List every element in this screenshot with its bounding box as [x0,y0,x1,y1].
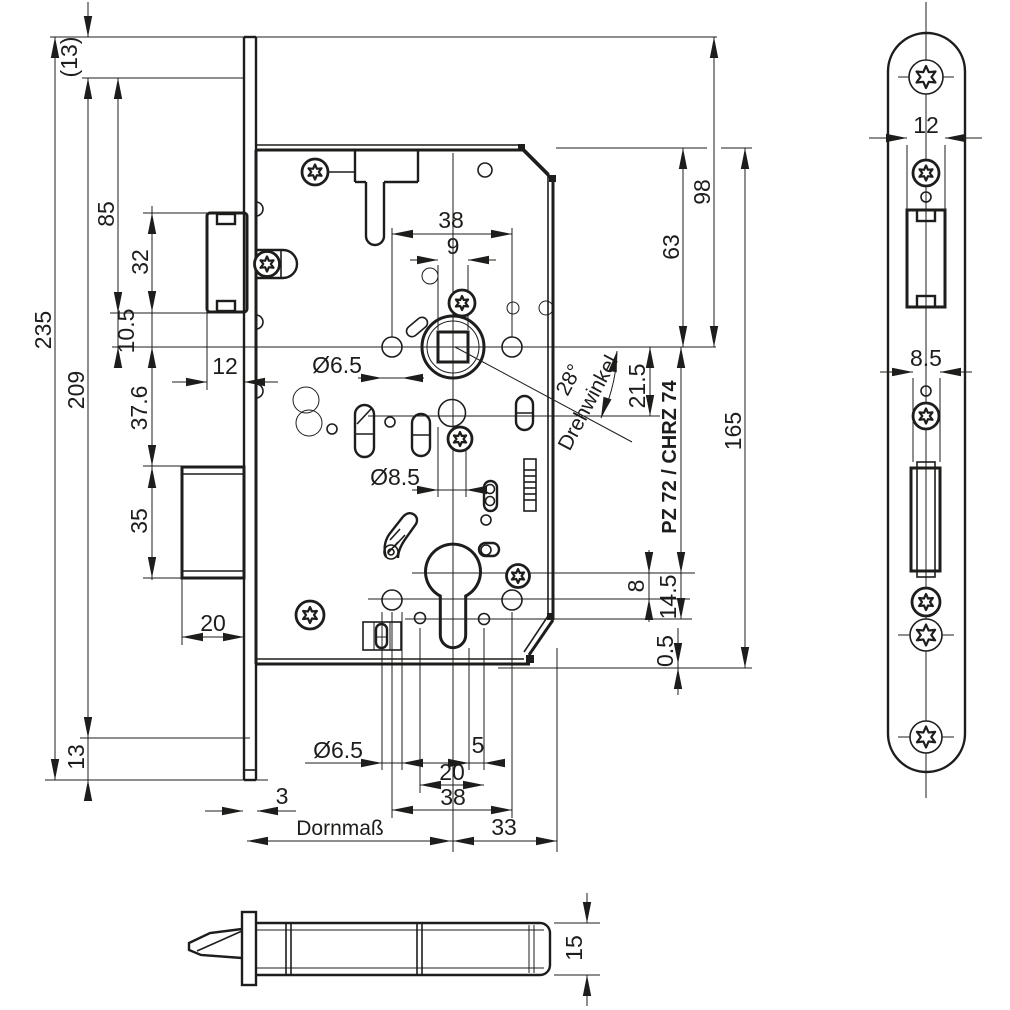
arrowhead [645,599,653,620]
dia-label-6-5-top: Ø6.5 [312,352,362,378]
arrowhead [536,837,557,845]
fixing-hole [382,590,402,610]
arrowhead [645,552,653,573]
torx-screw-icon [913,160,939,186]
latch-bolt [207,213,247,312]
dim-label-235: 235 [30,311,56,349]
bottom-view [189,912,550,985]
arrowhead [741,647,749,668]
arrowhead [223,633,244,641]
arrowhead [430,837,451,845]
torx-screw-icon [449,290,475,316]
arrowhead [583,902,591,923]
chamfer-mark [518,144,525,151]
arrowhead [148,557,156,578]
change-lever [384,513,417,559]
arrowhead [674,668,682,689]
faceplate-edge [244,37,256,780]
arrowhead [417,256,438,264]
arrowhead [51,759,59,780]
spring [524,459,536,511]
arrowhead [402,374,423,382]
arrowhead [392,806,413,814]
dim-label-32: 32 [127,249,153,275]
dim-label-13-paren: (13) [56,37,82,78]
torx-screw-icon [910,721,942,753]
chamfer-mark [549,175,556,182]
torx-screw-icon [302,159,328,185]
dim-label-10-5: 10.5 [113,309,139,354]
arrowhead [148,347,156,368]
arrowhead [392,230,413,238]
dim-label-165: 165 [720,412,746,450]
torx-screw-icon [507,565,530,588]
torx-screw-icon [912,588,940,616]
arrowhead [420,781,441,789]
main-view [182,37,556,780]
latch-tip [189,929,242,958]
dim-label-8: 8 [623,580,649,593]
arrowhead [491,230,512,238]
arrowhead [84,780,92,801]
arrowhead [710,37,718,58]
torx-screw-icon [255,252,280,277]
dia-label-6-5-bottom: Ø6.5 [313,737,363,763]
faceplate-bar [242,912,256,985]
dia-label-8-5: Ø8.5 [370,464,420,490]
arrowhead [468,256,489,264]
arrowhead [114,78,122,99]
arrowhead [679,148,687,169]
torx-screw-icon [448,427,472,451]
arrowhead [710,326,718,347]
faceplate-dim-8-5: 8.5 [910,345,942,371]
arrowhead [491,806,512,814]
oblong-slot [355,405,374,457]
technical-drawing-canvas: (13) 235 209 85 32 10.5 37.6 35 13 12 20… [0,0,1010,1010]
arrowhead [148,445,156,466]
internal-mechanism [293,387,536,650]
arrowhead [484,759,505,767]
dimension-lines [45,2,982,1006]
dim-label-63: 63 [658,234,684,260]
cylinder-hole [382,544,522,648]
dim-label-15: 15 [561,935,587,961]
dim-label-38-bottom: 38 [440,784,466,810]
arrowhead [222,807,243,815]
case-hole [478,163,492,177]
dim-label-13-bottom: 13 [63,744,89,770]
spring-catch-slot [404,315,429,339]
dim-label-98: 98 [689,179,715,205]
faceplate-dim-12: 12 [913,112,939,138]
arrowhead [186,378,207,386]
arrowhead [583,975,591,996]
dim-label-5: 5 [472,732,485,758]
dim-label-14-5: 14.5 [655,575,681,620]
arrowhead [84,16,92,37]
dim-label-20-bolt: 20 [200,610,226,636]
arrowhead [402,759,423,767]
dim-label-85: 85 [93,201,119,227]
dim-label-35: 35 [126,508,152,534]
dim-label-37-6: 37.6 [126,386,152,431]
arrowhead [148,467,156,488]
dimension-arrowheads [51,16,966,996]
arrowhead [677,347,685,368]
variant-label: PZ 72 / CHRZ 74 [659,379,681,533]
dim-label-38-top: 38 [438,207,464,233]
chamfer-mark [547,613,554,620]
arrowhead [466,486,487,494]
dim-label-9: 9 [447,233,460,259]
arrowhead [148,291,156,312]
dim-label-20-bottom: 20 [439,759,465,785]
arrowhead [84,717,92,738]
arrowhead [453,837,474,845]
dim-label-21-5: 21.5 [624,364,650,409]
fixing-hole [502,590,522,610]
torx-screw-icon [910,619,942,651]
small-hole [415,613,426,624]
arrowhead [886,134,907,142]
dim-label-3: 3 [276,783,289,809]
arrowhead [945,134,966,142]
dim-label-209: 209 [63,371,89,409]
torx-screw-icon [913,403,939,429]
arrowhead [247,837,268,845]
arrowhead [417,486,438,494]
arrowhead [463,781,484,789]
arrowhead [84,78,92,99]
arrowhead [361,759,382,767]
deadbolt [182,467,244,578]
arrowhead [940,368,961,376]
dim-label-33: 33 [491,814,517,840]
arrowhead [361,374,382,382]
backset-label: Dornmaß [296,817,384,840]
arrowhead [679,326,687,347]
dim-label-0-5: 0.5 [652,635,678,667]
arrowhead [148,213,156,234]
chamfer-mark [526,655,534,663]
hole-8-5 [439,400,466,427]
torx-screw-icon [909,60,943,94]
arrowhead [677,552,685,573]
arrowhead [741,148,749,169]
torx-screw-icon [296,601,324,629]
dim-label-12-latch: 12 [212,353,238,379]
case-profile [256,923,550,975]
